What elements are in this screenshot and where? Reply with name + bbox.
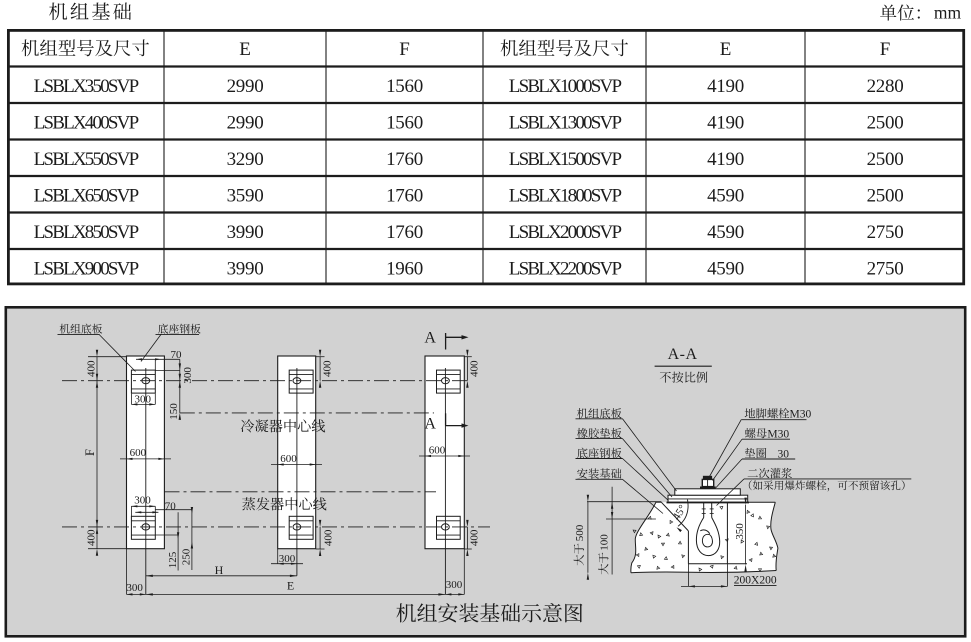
svg-text:2280: 2280	[867, 76, 904, 97]
svg-text:LSBLX1500SVP: LSBLX1500SVP	[509, 149, 622, 170]
svg-text:2500: 2500	[867, 113, 904, 134]
svg-text:LSBLX1300SVP: LSBLX1300SVP	[509, 113, 622, 134]
svg-text:70: 70	[171, 349, 183, 361]
svg-text:400: 400	[322, 529, 334, 546]
svg-text:4190: 4190	[707, 113, 744, 134]
svg-text:LSBLX650SVP: LSBLX650SVP	[34, 186, 139, 207]
svg-text:3990: 3990	[227, 222, 264, 243]
svg-text:400: 400	[86, 360, 98, 377]
svg-text:30: 30	[778, 448, 790, 460]
svg-text:1560: 1560	[386, 76, 423, 97]
svg-text:350: 350	[734, 523, 746, 540]
svg-text:300: 300	[182, 367, 194, 384]
svg-text:4190: 4190	[707, 149, 744, 170]
svg-text:400: 400	[468, 360, 480, 377]
svg-text:1960: 1960	[386, 258, 423, 279]
svg-text:M30: M30	[767, 428, 789, 440]
svg-text:2500: 2500	[867, 186, 904, 207]
svg-text:LSBLX400SVP: LSBLX400SVP	[34, 113, 139, 134]
svg-text:600: 600	[130, 447, 147, 459]
svg-text:2750: 2750	[867, 222, 904, 243]
svg-text:300: 300	[446, 579, 463, 591]
svg-text:E: E	[720, 39, 732, 60]
svg-text:300: 300	[134, 494, 151, 506]
svg-text:A: A	[424, 416, 436, 433]
svg-text:F: F	[399, 39, 410, 60]
svg-text:400: 400	[321, 360, 333, 377]
svg-text:600: 600	[280, 453, 297, 465]
svg-text:500: 500	[574, 524, 586, 541]
svg-text:2990: 2990	[227, 76, 264, 97]
svg-text:4590: 4590	[707, 222, 744, 243]
svg-text:F: F	[83, 449, 97, 456]
svg-text:1560: 1560	[386, 113, 423, 134]
svg-text:200X200: 200X200	[734, 574, 777, 586]
svg-text:300: 300	[135, 394, 152, 406]
svg-text:600: 600	[429, 444, 446, 456]
svg-text:1760: 1760	[386, 149, 423, 170]
svg-text:300: 300	[279, 553, 296, 565]
svg-text:H: H	[215, 563, 224, 577]
svg-text:LSBLX850SVP: LSBLX850SVP	[34, 222, 139, 243]
svg-text:E: E	[239, 39, 251, 60]
svg-text:M30: M30	[790, 409, 812, 421]
svg-text:70: 70	[165, 501, 177, 513]
svg-text:2750: 2750	[867, 258, 904, 279]
svg-text:400: 400	[86, 529, 98, 546]
svg-text:1760: 1760	[386, 186, 423, 207]
svg-text:LSBLX550SVP: LSBLX550SVP	[34, 149, 139, 170]
svg-text:mm: mm	[934, 3, 962, 23]
svg-text:E: E	[287, 579, 294, 593]
svg-text:2500: 2500	[867, 149, 904, 170]
svg-text:A: A	[424, 330, 436, 347]
svg-text:LSBLX1800SVP: LSBLX1800SVP	[509, 186, 622, 207]
svg-text:4590: 4590	[707, 258, 744, 279]
svg-text:4590: 4590	[707, 186, 744, 207]
svg-text:250: 250	[181, 548, 193, 565]
svg-text:1760: 1760	[386, 222, 423, 243]
svg-text:LSBLX1000SVP: LSBLX1000SVP	[509, 76, 622, 97]
svg-text:300: 300	[126, 582, 143, 594]
svg-text:3290: 3290	[227, 149, 264, 170]
svg-text:LSBLX900SVP: LSBLX900SVP	[34, 258, 139, 279]
svg-text:2990: 2990	[227, 113, 264, 134]
svg-text:400: 400	[468, 529, 480, 546]
svg-text:4190: 4190	[707, 76, 744, 97]
svg-text:125: 125	[167, 551, 179, 568]
svg-text:3990: 3990	[227, 258, 264, 279]
svg-text:3590: 3590	[227, 186, 264, 207]
svg-text:A-A: A-A	[668, 346, 698, 363]
svg-text:LSBLX2000SVP: LSBLX2000SVP	[509, 222, 622, 243]
svg-text:150: 150	[168, 403, 180, 420]
svg-text:LSBLX350SVP: LSBLX350SVP	[34, 76, 139, 97]
svg-text:100: 100	[599, 534, 611, 551]
svg-text:LSBLX2200SVP: LSBLX2200SVP	[509, 258, 622, 279]
svg-text:F: F	[880, 39, 891, 60]
